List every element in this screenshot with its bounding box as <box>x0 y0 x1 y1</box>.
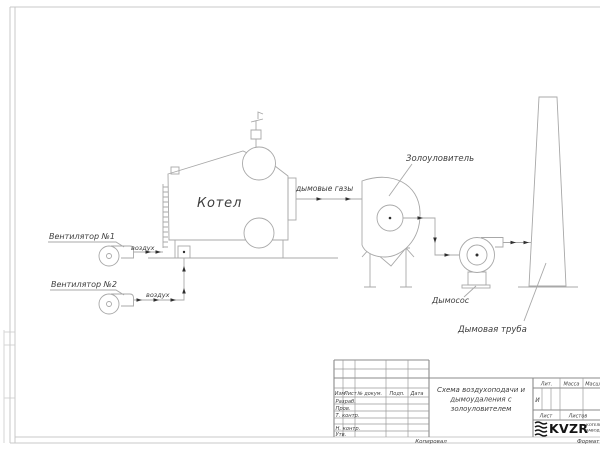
boiler-safety-valve <box>251 112 263 147</box>
title-line-1: Схема воздухоподачи и <box>437 386 526 394</box>
row-n-control: Н. контр. <box>336 426 361 432</box>
scale-label: Масшт <box>585 382 600 388</box>
fan-1: Вентилятор №1 <box>48 232 134 266</box>
row-developed: Разраб. <box>336 399 356 405</box>
fan2-air-duct: воздух <box>134 258 186 302</box>
flue-gas-label: дымовые газы <box>295 184 353 193</box>
smoke-exhauster-label: Дымосос <box>431 296 470 305</box>
col-date: Дата <box>410 391 424 397</box>
boiler-label: Котел <box>197 196 242 211</box>
col-sign: Подп. <box>390 391 405 397</box>
sheets-label: Листов <box>568 414 588 420</box>
chimney-label: Дымовая труба <box>457 325 527 335</box>
air-label-2: воздух <box>146 291 170 299</box>
col-doc: № докум. <box>357 391 383 397</box>
row-approved: Утв. <box>336 432 347 438</box>
logo-name: KVZR <box>549 421 588 436</box>
fan1-air-duct: воздух <box>131 244 163 254</box>
row-t-control: Т. контр. <box>336 413 360 419</box>
title-block: Изм Лист № докум. Подп. Дата Разраб. Про… <box>334 360 600 445</box>
schematic-svg: Вентилятор №1 воздух Вентилятор №2 возду… <box>0 0 600 450</box>
title-line-2: дымоудаления с <box>449 396 512 404</box>
ash-collector-label: Золоуловитель <box>406 154 474 164</box>
air-label-1: воздух <box>131 244 155 252</box>
drawing-sheet: Вентилятор №1 воздух Вентилятор №2 возду… <box>0 0 600 450</box>
ash-collector: Золоуловитель <box>362 154 474 287</box>
smoke-exhauster: Дымосос <box>431 238 503 306</box>
sheet-label: Лист <box>539 414 554 420</box>
copied-label: Копировал <box>415 439 447 445</box>
title-line-3: золоуловителем <box>451 405 513 413</box>
chimney: Дымовая труба <box>457 97 578 335</box>
drawing-title: Схема воздухоподачи и дымоудаления с зол… <box>437 386 526 413</box>
fan2-label: Вентилятор №2 <box>51 280 117 289</box>
lit-value: И <box>535 397 540 404</box>
fan-2: Вентилятор №2 <box>50 280 134 314</box>
row-checked: Пров. <box>336 406 351 412</box>
kvzr-coil-icon <box>535 422 547 436</box>
flue-gas-line: дымовые газы <box>295 184 362 201</box>
col-list: Лист <box>343 391 358 397</box>
logo-sub-2: ЗАВОД <box>586 428 600 433</box>
logo-sub-1: КОТЕЛЬН <box>586 422 600 427</box>
format-label: Формат <box>577 439 600 445</box>
exhauster-to-chimney-line <box>503 241 531 245</box>
lit-label: Лит. <box>540 382 553 388</box>
kvzr-logo: KVZR КОТЕЛЬН ЗАВОД <box>535 421 600 436</box>
fan1-label: Вентилятор №1 <box>49 232 115 241</box>
mass-label: Масса <box>564 382 580 388</box>
